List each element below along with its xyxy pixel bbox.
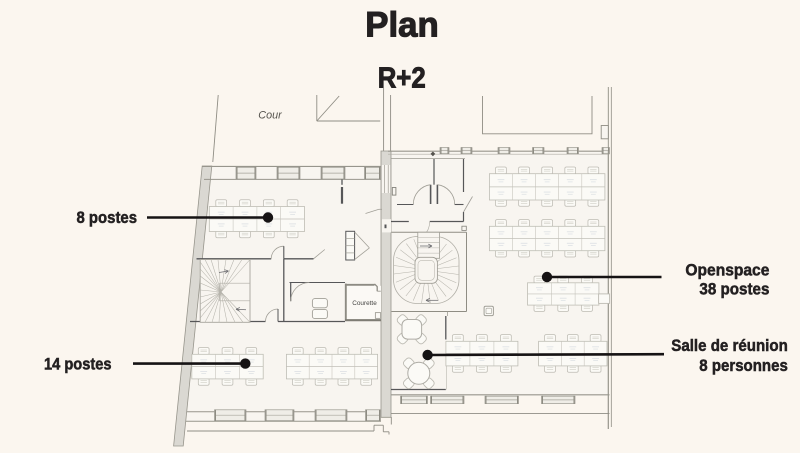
- svg-text:Cour: Cour: [258, 110, 282, 122]
- svg-text:R+2: R+2: [378, 63, 426, 95]
- svg-text:38 postes: 38 postes: [699, 281, 769, 299]
- svg-text:Courette: Courette: [352, 300, 377, 307]
- svg-text:Plan: Plan: [365, 6, 439, 45]
- svg-text:Salle de réunion: Salle de réunion: [671, 337, 788, 355]
- svg-text:Openspace: Openspace: [685, 261, 769, 279]
- svg-text:14 postes: 14 postes: [44, 355, 112, 373]
- svg-text:8 postes: 8 postes: [77, 209, 138, 227]
- svg-text:8 personnes: 8 personnes: [699, 357, 788, 375]
